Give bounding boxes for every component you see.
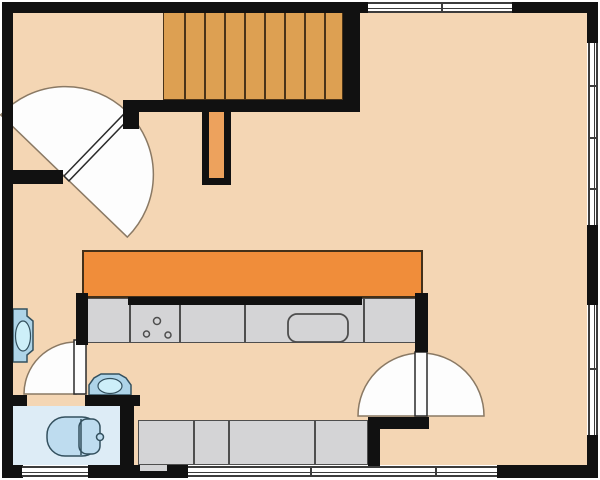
window-tick [590,137,596,139]
window-tick [435,468,437,475]
right-wall-window-lower [588,305,598,435]
windows-layer [0,0,600,480]
window-mullion-line [22,472,88,474]
window-tick [590,368,596,370]
window-mullion-line [188,472,497,474]
floor-plan [0,0,600,480]
window-tick [310,468,312,475]
window-mullion-line [368,8,512,10]
window-mullion-line [594,305,596,435]
top-wall-window [368,2,512,13]
window-tick [590,85,596,87]
window-tick [590,188,596,190]
bathroom-window [22,466,88,477]
right-wall-window-upper [588,43,598,225]
window-mullion-line [594,43,596,225]
counter-step [140,465,167,471]
window-tick [441,4,443,11]
bottom-wall-window-long [188,466,497,477]
